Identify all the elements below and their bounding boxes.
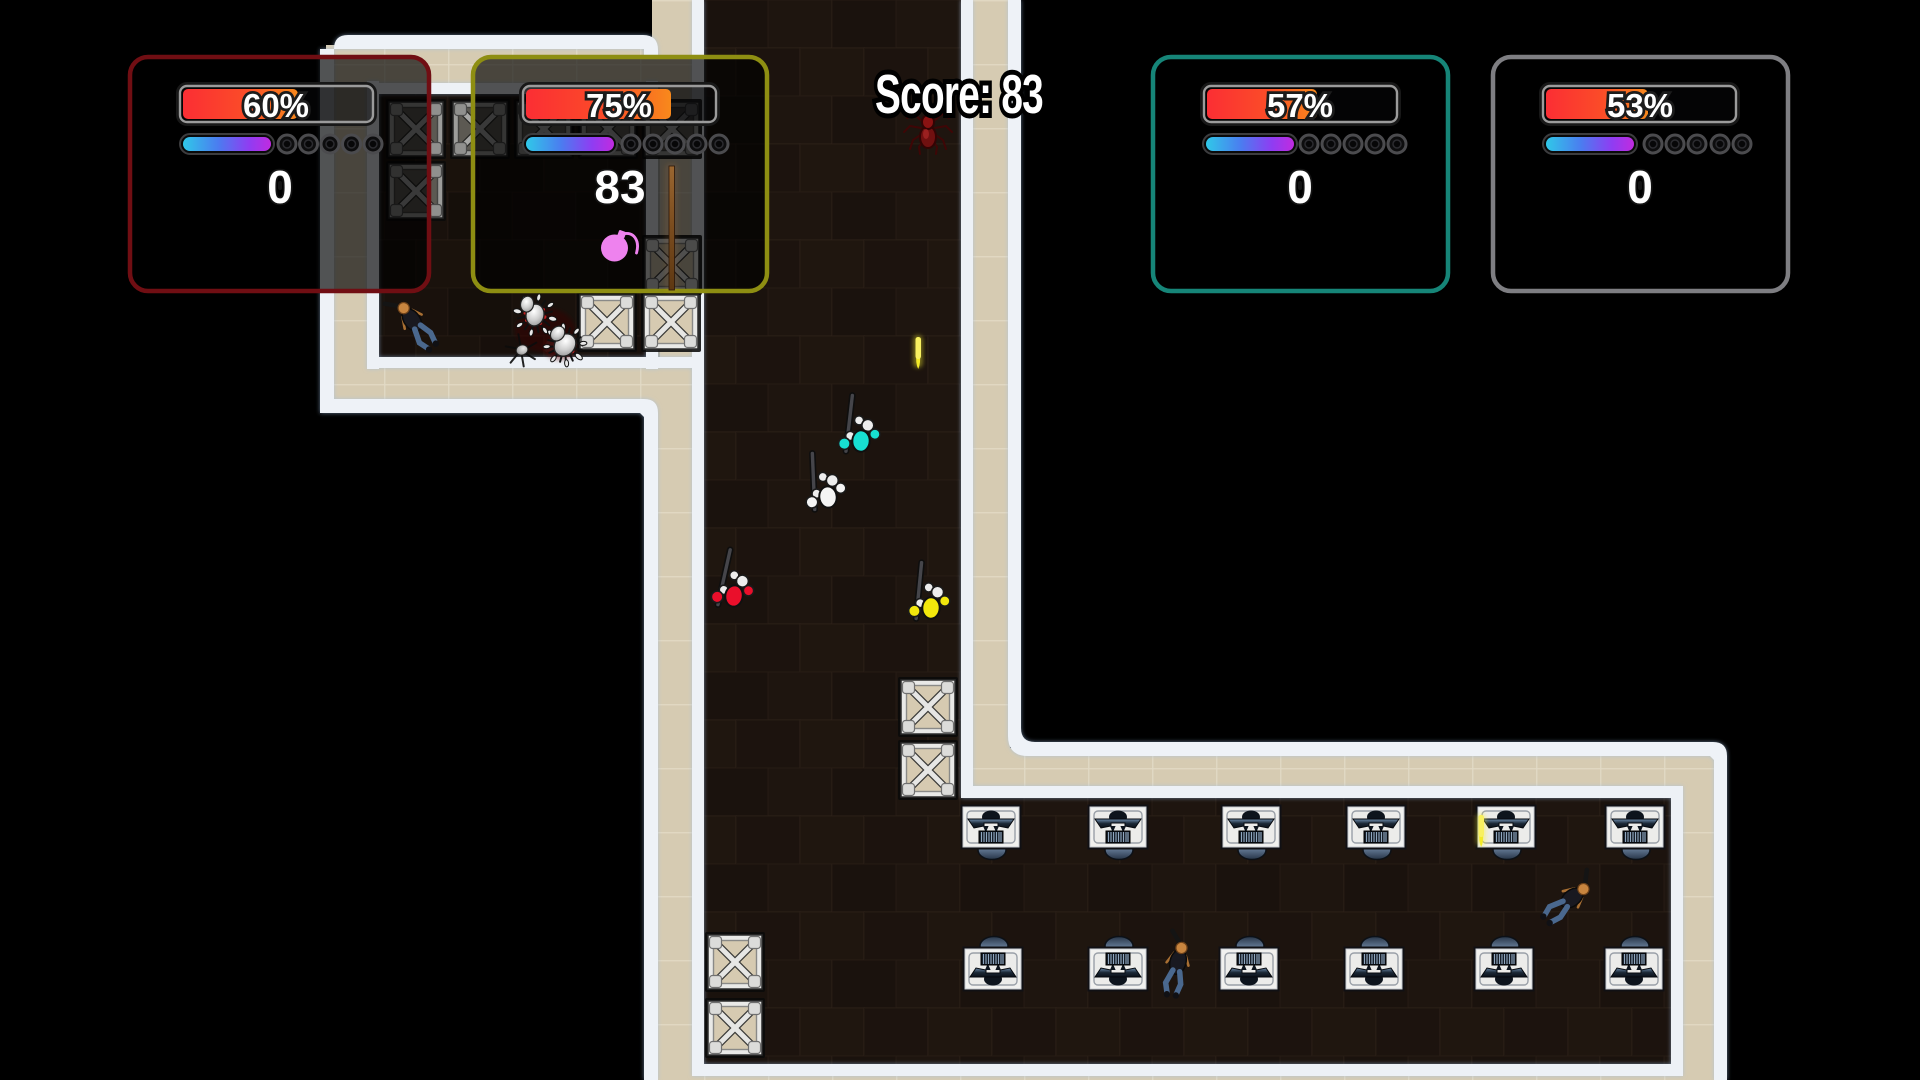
svg-text:57%: 57% xyxy=(1267,87,1333,124)
svg-text:75%: 75% xyxy=(586,87,652,124)
svg-text:Score: 83: Score: 83 xyxy=(875,63,1043,125)
svg-text:53%: 53% xyxy=(1607,87,1673,124)
svg-text:60%: 60% xyxy=(243,87,309,124)
svg-text:83: 83 xyxy=(594,161,645,213)
